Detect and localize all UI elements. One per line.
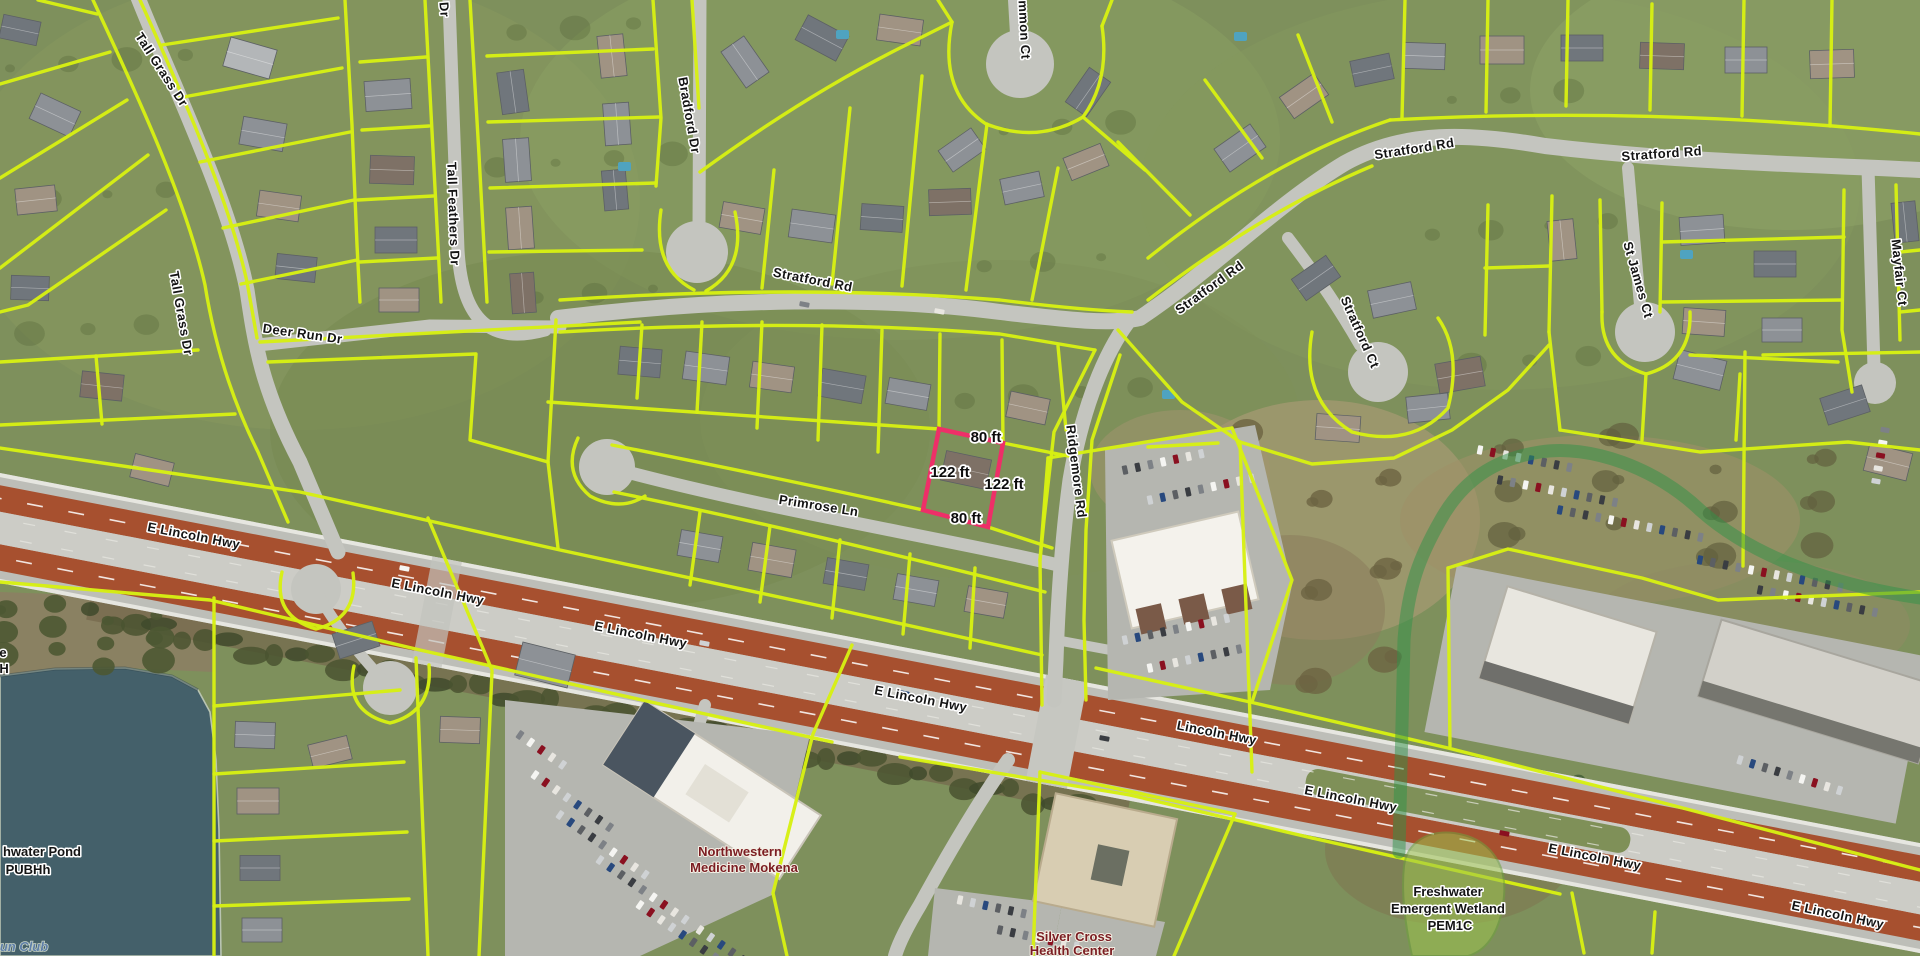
tree-canopy <box>134 314 160 334</box>
tree-canopy <box>305 645 335 663</box>
tree-canopy <box>1299 668 1332 694</box>
tree-canopy <box>1096 253 1106 261</box>
tree-canopy <box>102 616 114 626</box>
street-label: mmon Ct <box>1015 0 1033 60</box>
tree-canopy <box>657 142 688 167</box>
tree-canopy <box>92 658 114 676</box>
tree-canopy <box>817 748 835 770</box>
dimension-label-right: 122 ft <box>984 476 1023 493</box>
tree-canopy <box>449 675 467 693</box>
tree-canopy <box>977 260 992 272</box>
tree-canopy <box>877 763 913 785</box>
dimension-label-top: 80 ft <box>971 429 1002 446</box>
area-label: PUBHh <box>6 862 51 877</box>
tree-canopy <box>1478 220 1504 240</box>
area-label: PEM1C <box>1428 918 1473 933</box>
tree-canopy <box>1508 527 1525 541</box>
tree-canopy <box>506 24 526 40</box>
tree-canopy <box>1703 542 1736 568</box>
tree-canopy <box>173 632 191 650</box>
tree-canopy <box>1001 779 1019 797</box>
dimension-label-left: 122 ft <box>930 464 969 481</box>
tree-canopy <box>44 595 66 613</box>
tree-canopy <box>233 647 269 665</box>
area-label: Northwestern <box>698 844 782 859</box>
tree-canopy <box>1575 346 1601 366</box>
area-label: e <box>0 645 7 660</box>
map-canvas: 80 ft 122 ft 122 ft 80 ft Tall Grass DrT… <box>0 0 1920 956</box>
dimension-label-bottom: 80 ft <box>951 510 982 527</box>
pond-water <box>0 668 221 956</box>
tree-canopy <box>147 626 175 648</box>
tree-canopy <box>626 17 641 29</box>
tree-canopy <box>81 602 99 616</box>
swimming-pool <box>836 30 849 39</box>
aerial-map[interactable]: 80 ft 122 ft 122 ft 80 ft Tall Grass DrT… <box>0 0 1920 956</box>
tree-canopy <box>1105 110 1136 135</box>
tree-canopy <box>265 644 283 666</box>
area-label: Medicine Mokena <box>690 860 798 875</box>
tree-canopy <box>1814 449 1836 467</box>
area-label: Silver Cross <box>1036 929 1112 944</box>
tree-canopy <box>178 49 193 61</box>
swimming-pool <box>1234 32 1247 41</box>
tree-canopy <box>97 637 114 651</box>
tree-canopy <box>1390 561 1402 571</box>
area-label: Health Center <box>1030 943 1115 956</box>
tree-canopy <box>1801 532 1834 558</box>
tree-canopy <box>1447 96 1457 104</box>
tree-canopy <box>5 64 15 72</box>
tree-canopy <box>14 321 45 346</box>
tree-canopy <box>582 283 608 303</box>
tree-canopy <box>1606 423 1639 449</box>
tree-canopy <box>955 393 975 409</box>
area-label: H <box>0 661 9 676</box>
swimming-pool <box>618 162 631 171</box>
tree-canopy <box>560 16 591 41</box>
tree-canopy <box>417 678 453 692</box>
tree-canopy <box>1553 79 1584 104</box>
tree-canopy <box>102 190 112 198</box>
tree-canopy <box>1127 377 1153 397</box>
tree-canopy <box>1305 579 1333 601</box>
tree-canopy <box>1425 229 1440 241</box>
tree-canopy <box>909 766 927 780</box>
tree-canopy <box>551 159 561 167</box>
tree-canopy <box>1807 491 1835 513</box>
tree-canopy <box>1710 465 1722 475</box>
tree-canopy <box>1379 469 1401 487</box>
tree-canopy <box>213 632 243 646</box>
tree-canopy <box>48 642 65 656</box>
area-label: un Club <box>0 939 48 954</box>
tree-canopy <box>39 616 67 638</box>
swimming-pool <box>1680 250 1693 259</box>
area-label: Freshwater <box>1413 884 1482 899</box>
tree-canopy <box>1310 490 1332 508</box>
tree-canopy <box>648 285 658 293</box>
tree-canopy <box>142 647 175 673</box>
area-label: Emergent Wetland <box>1391 901 1505 916</box>
tree-canopy <box>80 323 95 335</box>
tree-canopy <box>1500 87 1520 103</box>
tree-canopy <box>1612 475 1624 485</box>
tree-canopy <box>325 659 361 681</box>
area-label: hwater Pond <box>3 844 81 859</box>
street-label: Dr <box>436 1 452 17</box>
